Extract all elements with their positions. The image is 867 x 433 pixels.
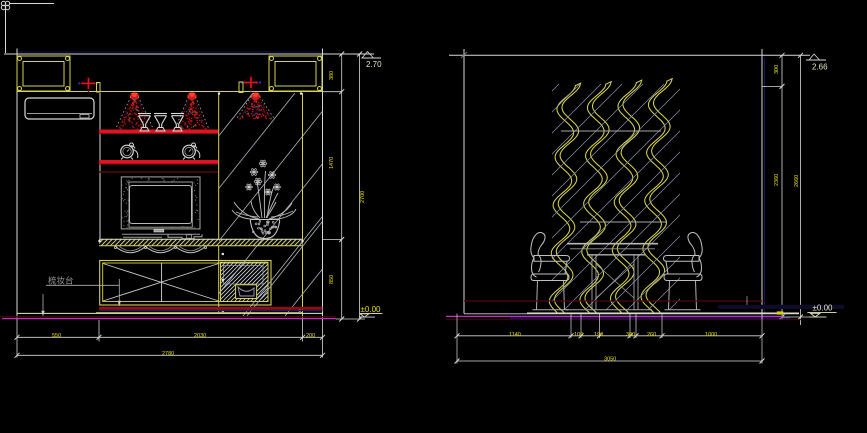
svg-text:2.70: 2.70 (366, 60, 382, 69)
svg-text:2780: 2780 (162, 351, 174, 357)
svg-text:260: 260 (647, 332, 656, 338)
svg-text:±0.00: ±0.00 (361, 305, 382, 314)
svg-text:±0.00: ±0.00 (813, 303, 834, 312)
svg-text:2660: 2660 (794, 175, 800, 187)
svg-text:2700: 2700 (360, 191, 366, 203)
svg-text:2.66: 2.66 (812, 63, 828, 72)
svg-text:1140: 1140 (509, 332, 521, 338)
svg-text:850: 850 (329, 275, 335, 284)
svg-text:100: 100 (574, 332, 583, 338)
svg-text:2360: 2360 (774, 174, 780, 186)
svg-text:梳妆台: 梳妆台 (48, 276, 74, 286)
svg-text:3050: 3050 (604, 357, 616, 363)
svg-text:1000: 1000 (705, 332, 717, 338)
svg-text:190: 190 (594, 332, 603, 338)
svg-text:300: 300 (774, 65, 780, 74)
svg-text:550: 550 (52, 333, 61, 339)
svg-text:300: 300 (626, 332, 635, 338)
svg-text:200: 200 (306, 333, 315, 339)
svg-text:380: 380 (329, 71, 335, 80)
svg-text:2030: 2030 (194, 333, 206, 339)
svg-text:1470: 1470 (329, 157, 335, 169)
